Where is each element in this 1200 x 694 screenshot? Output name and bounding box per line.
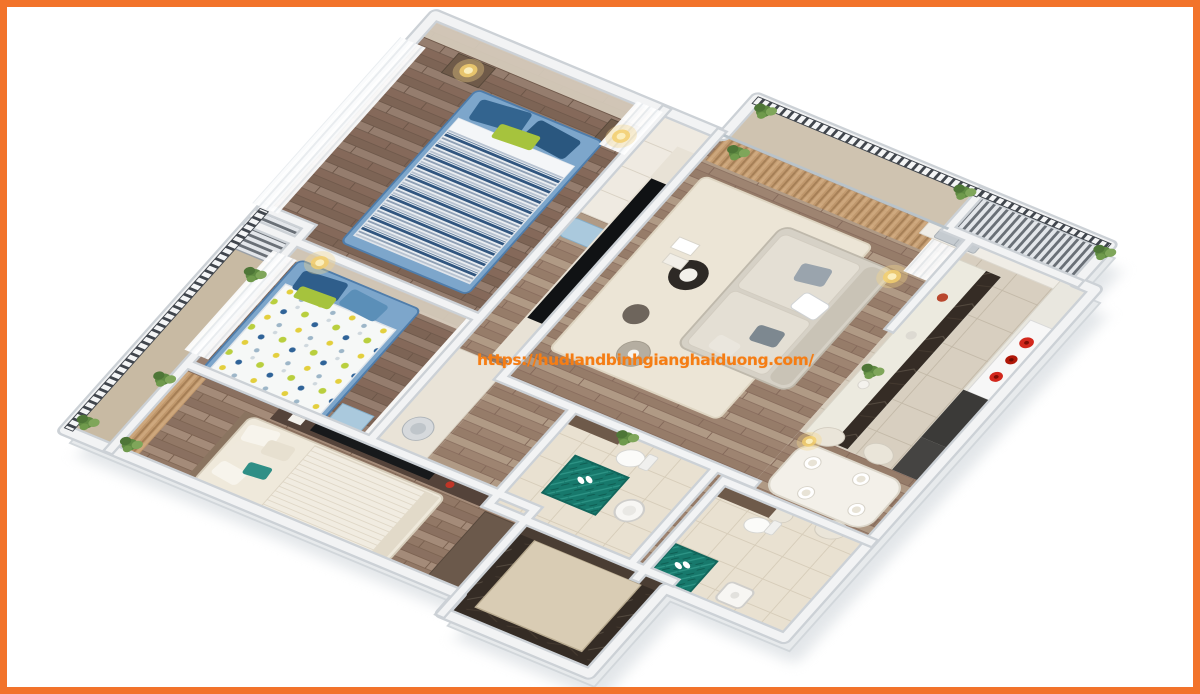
screenshot-frame: https://hudlandbinhgianghaiduong.com/: [0, 0, 1200, 694]
watermark-url: https://hudlandbinhgianghaiduong.com/: [477, 351, 809, 369]
floorplan-render: [7, 7, 1193, 687]
apartment-plan: [37, 7, 1129, 687]
